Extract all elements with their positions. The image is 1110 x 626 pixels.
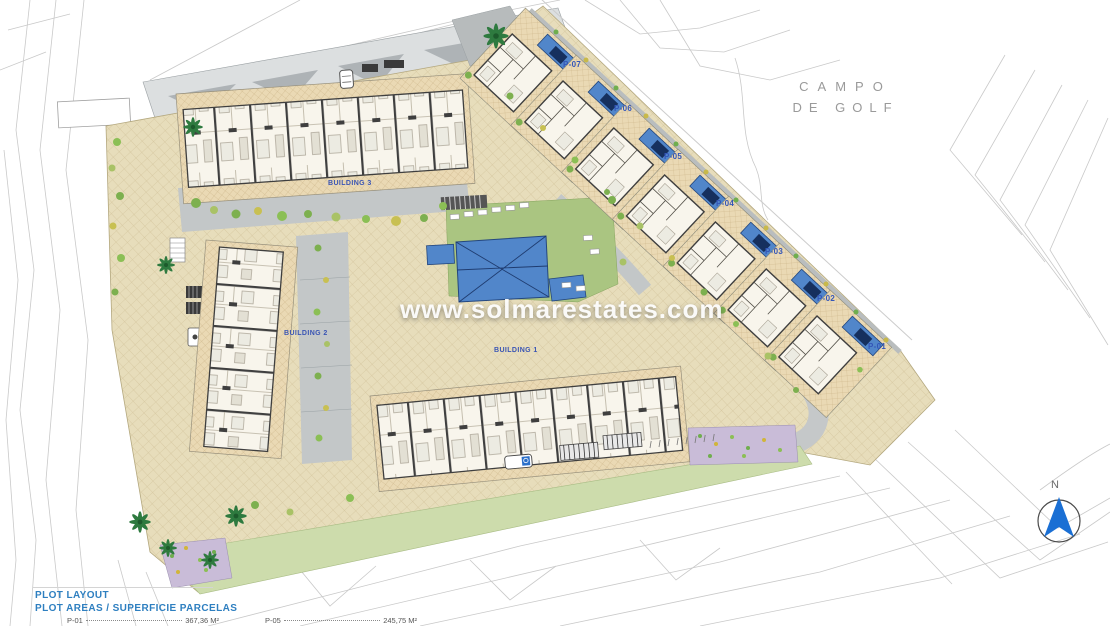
legend-subtitle: PLOT AREAS / SUPERFICIE PARCELAS <box>35 603 237 614</box>
legend-entry-p01: P-01 367,36 M² <box>67 616 219 625</box>
disabled-parking-icon <box>504 454 532 469</box>
north-label: N <box>1051 479 1060 491</box>
legend-entry-leader <box>86 620 182 621</box>
site-plan-page: www.solmarestates.com CAMPO DE GOLF BUIL… <box>0 0 1110 626</box>
building-2-label: BUILDING 2 <box>284 330 328 337</box>
plot-label-p05: P-05 <box>664 152 682 161</box>
golf-label-line2: DE GOLF <box>758 97 933 118</box>
legend-entry-code: P-05 <box>265 616 281 625</box>
legend-title: PLOT LAYOUT <box>35 590 109 601</box>
plot-label-p04: P-04 <box>716 199 734 208</box>
legend-entry-code: P-01 <box>67 616 83 625</box>
legend-entry-area: 245,75 M² <box>383 616 417 625</box>
plot-label-p03: P-03 <box>765 247 783 256</box>
legend-divider <box>33 587 213 588</box>
plot-label-p02: P-02 <box>817 294 835 303</box>
north-arrow-icon <box>1038 497 1080 542</box>
watermark-text: www.solmarestates.com <box>400 294 720 325</box>
legend-entry-p05: P-05 245,75 M² <box>265 616 417 625</box>
building-3-label: BUILDING 3 <box>328 180 372 187</box>
golf-course-label: CAMPO DE GOLF <box>758 76 933 118</box>
building-2-block <box>189 240 297 459</box>
building-3-block <box>176 74 475 204</box>
building-1-label: BUILDING 1 <box>494 347 538 354</box>
plot-label-p01: P-01 <box>868 342 886 351</box>
plot-label-p07: P-07 <box>563 60 581 69</box>
plot-label-p06: P-06 <box>614 104 632 113</box>
golf-label-line1: CAMPO <box>758 76 933 97</box>
legend-entry-leader <box>284 620 380 621</box>
legend-entry-area: 367,36 M² <box>185 616 219 625</box>
